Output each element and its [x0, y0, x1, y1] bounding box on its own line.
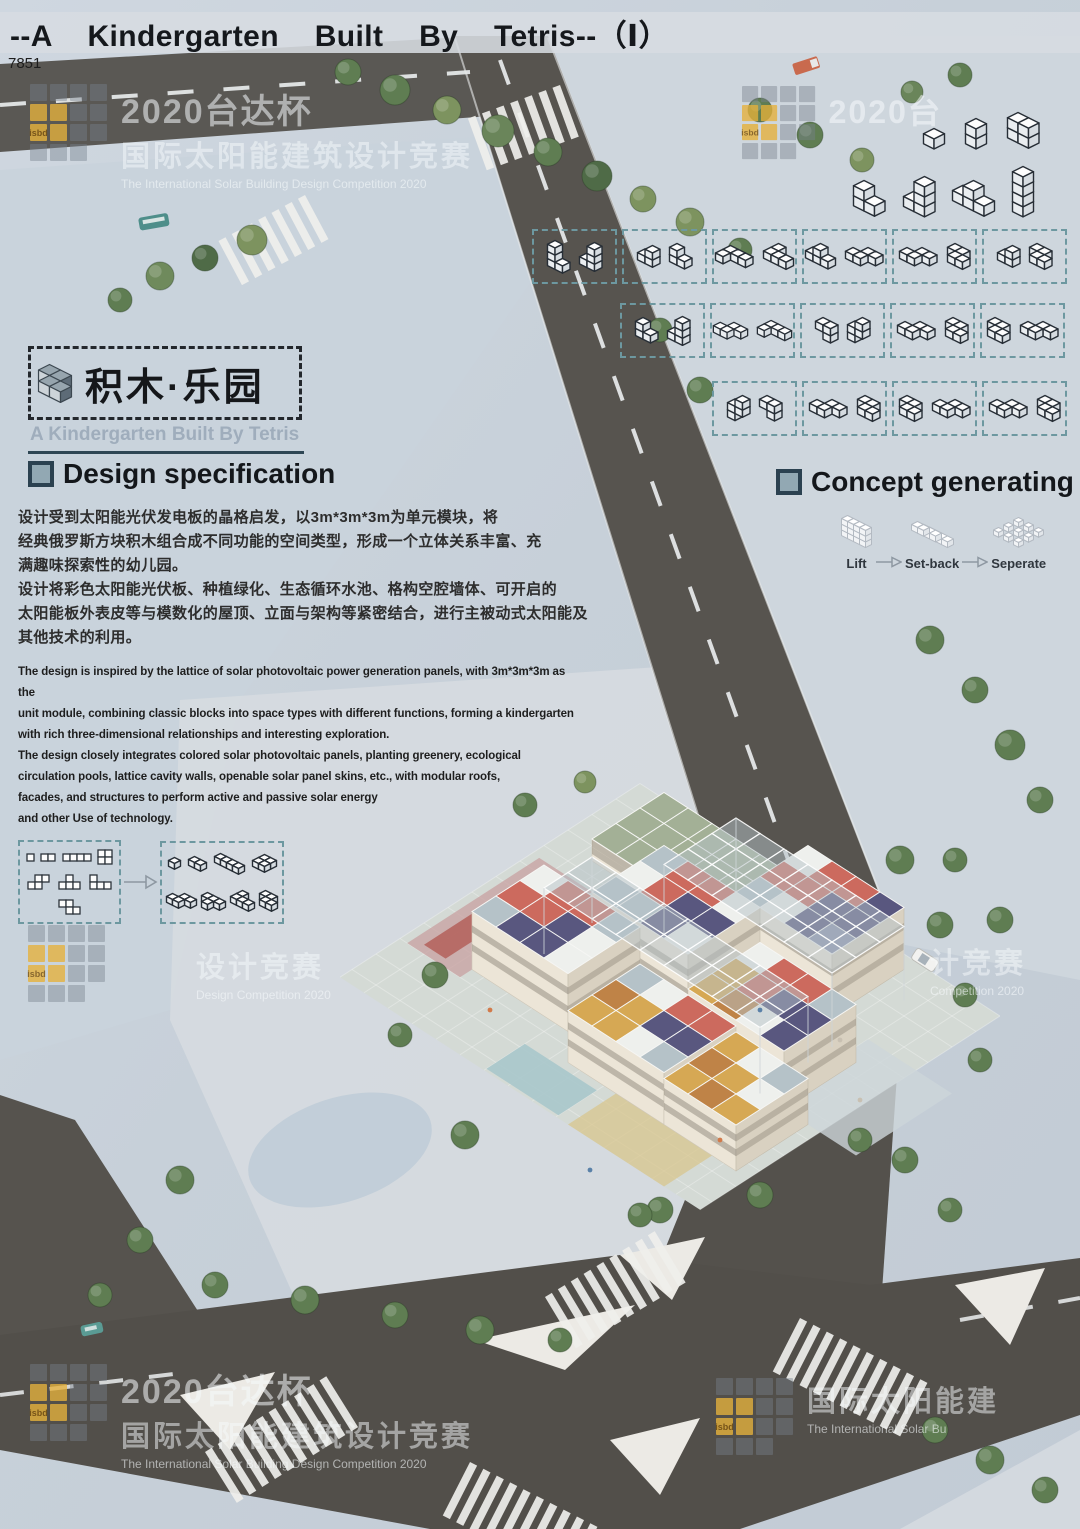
- tetris-piece-zf4: [258, 889, 279, 913]
- flat-tetris-shape: [97, 849, 113, 865]
- watermark-line: The International Solar Building Design …: [121, 177, 473, 191]
- tetris-piece-lf4: [229, 889, 256, 913]
- logo-cell: [68, 985, 85, 1002]
- tree: [388, 1023, 412, 1047]
- tetris-piece-zv3: [758, 394, 784, 423]
- watermark-line: 2020台达杯: [121, 1364, 473, 1413]
- watermark: 设计竞赛Design Competition 2020: [196, 944, 331, 1002]
- logo-cell: [88, 965, 105, 982]
- logo-cell: [742, 86, 758, 102]
- tetris-variant-box: [800, 303, 885, 358]
- logo-cell: [780, 86, 796, 102]
- logo-cell: [88, 945, 105, 962]
- tree: [630, 186, 656, 212]
- logo-cell: [30, 1384, 47, 1401]
- tetris-piece-sf4: [808, 398, 849, 419]
- watermark-line: The International Solar Bu: [807, 1422, 999, 1436]
- logo-cell: [70, 1424, 87, 1441]
- logo-cell: [756, 1378, 773, 1395]
- tetris-variant-box: [620, 303, 705, 358]
- logo-cell: [70, 1404, 87, 1421]
- tetris-variant-box: [982, 381, 1067, 436]
- watermark-line: 2020台达杯: [121, 84, 473, 133]
- square-bullet-icon: [28, 461, 54, 487]
- logo-cell: [736, 1398, 753, 1415]
- concept-steps: LiftSet-backSeperate: [840, 514, 1046, 571]
- logo-cell: [799, 86, 815, 102]
- logo-title: 积木·乐园: [85, 356, 265, 411]
- tetris-piece-sv4: [726, 394, 752, 422]
- watermark-line: Design Competition 2020: [196, 988, 331, 1002]
- logo-cell: [50, 1384, 67, 1401]
- logo-cell: [28, 985, 45, 1002]
- logo-cell: [756, 1418, 773, 1435]
- watermark-line: Competition 2020: [930, 984, 1026, 998]
- logo-cell: [799, 105, 815, 121]
- logo-box: 积木·乐园: [28, 346, 302, 420]
- tree: [916, 626, 944, 654]
- step-label: Lift: [846, 556, 866, 571]
- watermark-line: The International Solar Building Design …: [121, 1457, 473, 1471]
- watermark: 计竞赛Competition 2020: [930, 940, 1026, 998]
- logo-cell: isbd: [30, 124, 47, 141]
- tree: [422, 962, 448, 988]
- tetris-piece-zf4: [856, 394, 882, 423]
- flat-shapes-box: [18, 840, 121, 924]
- tetris-piece-lv3b: [996, 244, 1022, 269]
- logo-cell: [70, 84, 87, 101]
- tetris-piece-sf4: [896, 320, 937, 341]
- logo-cell: isbd: [28, 965, 45, 982]
- tetris-variant-row: [532, 229, 1067, 284]
- square-bullet-icon: [776, 469, 802, 495]
- flat-tetris-shape: [58, 899, 81, 915]
- tree: [108, 288, 132, 312]
- tetris-piece-zf4: [986, 316, 1012, 345]
- tree: [166, 1166, 194, 1194]
- tetris-piece-lv3a: [634, 316, 660, 345]
- concept-title: Concept generating: [811, 466, 1074, 498]
- tree: [382, 1302, 408, 1328]
- tetris-piece-i4: [213, 852, 246, 876]
- design-spec-en: The design is inspired by the lattice of…: [18, 662, 578, 830]
- logo-cell: [50, 124, 67, 141]
- watermark-text: 2020台达杯国际太阳能建筑设计竞赛The International Sola…: [121, 1364, 473, 1471]
- tree: [747, 1182, 773, 1208]
- logo-cell: [90, 84, 107, 101]
- flat-tetris-shape: [62, 853, 92, 862]
- flat-tetris-shape: [27, 874, 50, 890]
- tree: [482, 115, 514, 147]
- logo-cell: [30, 104, 47, 121]
- tetris-piece-t3d: [951, 179, 996, 218]
- tetris-variant-box: [712, 229, 797, 284]
- concept-step-seperate: Seperate: [991, 516, 1046, 571]
- design-spec-title: Design specification: [63, 458, 335, 490]
- tetris-piece-zf4: [946, 242, 972, 271]
- design-spec-heading: Design specification: [28, 458, 335, 490]
- tetris-variant-box: [892, 229, 977, 284]
- tree: [962, 677, 988, 703]
- tetris-logo-icon: [37, 363, 73, 404]
- tetris-piece-sq4: [251, 853, 278, 874]
- isbd-logo: isbd: [742, 86, 815, 159]
- watermark: isbd国际太阳能建The International Solar Bu: [716, 1378, 999, 1455]
- logo-cell: [28, 945, 45, 962]
- watermark-text: 设计竞赛Design Competition 2020: [196, 944, 331, 1002]
- watermark-line: 国际太阳能建筑设计竞赛: [121, 1413, 473, 1455]
- step-diagram-setback: [910, 520, 955, 549]
- logo-cell: [70, 124, 87, 141]
- concept-step-set-back: Set-back: [905, 520, 959, 571]
- tetris-piece-c1: [167, 856, 182, 871]
- plate-number: 7851: [8, 55, 41, 72]
- poster-title: --A Kindergarten Built By Tetris--（Ⅰ）: [0, 11, 669, 55]
- tetris-piece-jf4: [714, 244, 755, 269]
- tetris-solid-row: [852, 156, 1035, 218]
- logo-cell: [736, 1438, 753, 1455]
- tetris-piece-zf4: [898, 394, 924, 423]
- logo-cell: [776, 1398, 793, 1415]
- tree: [848, 1128, 872, 1152]
- logo-cell: [761, 86, 777, 102]
- logo-cell: [756, 1398, 773, 1415]
- logo-cell: [716, 1378, 733, 1395]
- flow-arrow-icon: [876, 556, 902, 568]
- tetris-piece-sf4: [165, 892, 198, 910]
- tetris-piece-sv4: [846, 316, 872, 344]
- watermark: isbd: [28, 925, 105, 1002]
- concept-step-lift: Lift: [840, 514, 873, 571]
- tetris-variant-box: [982, 229, 1067, 284]
- watermark-line: 国际太阳能建筑设计竞赛: [121, 133, 473, 175]
- tetris-variant-box: [892, 381, 977, 436]
- tetris-piece-lv3a: [852, 179, 887, 218]
- logo-cell: [780, 105, 796, 121]
- logo-cell: [756, 1438, 773, 1455]
- tree: [927, 912, 953, 938]
- isbd-logo: isbd: [30, 84, 107, 161]
- tree: [1032, 1477, 1058, 1503]
- logo-cell: [780, 143, 796, 159]
- tetris-variant-box: [980, 303, 1065, 358]
- iso-shapes-box: [160, 841, 284, 924]
- tetris-piece-col4: [1011, 165, 1035, 218]
- logo-cell: [799, 124, 815, 140]
- tetris-piece-lf4: [762, 242, 795, 271]
- tree: [202, 1272, 228, 1298]
- tetris-logo-icon: [37, 363, 73, 404]
- logo-cell: [90, 1384, 107, 1401]
- logo-underline: [28, 451, 304, 454]
- tree: [127, 1227, 153, 1253]
- isbd-logo: isbd: [30, 1364, 107, 1441]
- logo-cell: [48, 945, 65, 962]
- isbd-logo: isbd: [28, 925, 105, 1002]
- step-diagram-lift: [840, 514, 873, 549]
- logo-cell: isbd: [742, 124, 758, 140]
- logo-cell: [50, 144, 67, 161]
- tetris-piece-c1: [922, 127, 946, 150]
- tetris-piece-lv3b: [636, 244, 662, 269]
- logo-cell: [70, 104, 87, 121]
- logo-cell: [28, 925, 45, 942]
- tetris-solid-row: [922, 84, 1041, 150]
- tetris-piece-zf4: [1036, 394, 1062, 423]
- logo-cell: [48, 965, 65, 982]
- tetris-variant-box: [710, 303, 795, 358]
- tree: [582, 161, 612, 191]
- logo-cell: [776, 1378, 793, 1395]
- tetris-piece-sf4: [712, 320, 749, 341]
- logo-cell: [90, 124, 107, 141]
- tetris-piece-sf4: [1019, 320, 1060, 341]
- logo-cell: [68, 945, 85, 962]
- tetris-piece-sf4: [931, 398, 972, 419]
- watermark: isbd2020台达杯国际太阳能建筑设计竞赛The International …: [30, 84, 473, 191]
- tetris-piece-w22: [1006, 111, 1041, 150]
- tetris-piece-d2: [187, 855, 208, 873]
- tetris-piece-lv4a: [546, 239, 572, 275]
- logo-cell: [50, 1404, 67, 1421]
- tetris-variant-box: [890, 303, 975, 358]
- tree: [968, 1048, 992, 1072]
- logo-cell: [776, 1418, 793, 1435]
- watermark-text: 计竞赛Competition 2020: [930, 940, 1026, 998]
- tree: [534, 138, 562, 166]
- logo-cell: [736, 1378, 753, 1395]
- flat-tetris-shape: [40, 853, 56, 862]
- flat-tetris-shape: [58, 874, 81, 890]
- tree: [291, 1286, 319, 1314]
- watermark-line: 国际太阳能建: [807, 1378, 999, 1420]
- tetris-piece-t3d: [804, 242, 837, 271]
- competition-poster: { "header": { "title": "--A Kindergarten…: [0, 0, 1080, 1529]
- tetris-variant-box: [712, 381, 797, 436]
- logo-cell: [70, 1384, 87, 1401]
- logo-cell: [70, 1364, 87, 1381]
- tetris-variant-row: [712, 381, 1067, 436]
- tetris-piece-lv4b: [578, 241, 604, 273]
- transform-arrow-icon: [124, 874, 158, 890]
- logo-cell: [30, 1424, 47, 1441]
- tetris-piece-zf4: [944, 316, 970, 345]
- tree: [88, 1283, 112, 1307]
- step-label: Seperate: [991, 556, 1046, 571]
- tetris-piece-zv3: [814, 316, 840, 345]
- tree: [548, 1328, 572, 1352]
- tetris-piece-tf4: [200, 891, 227, 912]
- title-strip: --A Kindergarten Built By Tetris--（Ⅰ）: [0, 12, 1080, 53]
- watermark: isbd2020台达杯国际太阳能建筑设计竞赛The International …: [30, 1364, 473, 1471]
- flat-tetris-shape: [26, 853, 35, 862]
- tree: [1027, 787, 1053, 813]
- tree: [451, 1121, 479, 1149]
- tetris-piece-lv4b: [902, 175, 937, 218]
- logo-cell: [761, 124, 777, 140]
- watermark-text: 2020台达杯国际太阳能建筑设计竞赛The International Sola…: [121, 84, 473, 191]
- logo-cell: [742, 143, 758, 159]
- flat-tetris-shape: [89, 874, 112, 890]
- logo-cell: [70, 144, 87, 161]
- tree: [335, 59, 361, 85]
- tetris-piece-sf4: [988, 398, 1029, 419]
- logo-cell: [50, 84, 67, 101]
- design-spec-cn: 设计受到太阳能光伏发电板的晶格启发，以3m*3m*3m为单元模块，将 经典俄罗斯…: [18, 506, 618, 650]
- watermark-line: 计竞赛: [930, 940, 1026, 982]
- tetris-variant-box: [802, 381, 887, 436]
- logo-cell: [780, 124, 796, 140]
- tetris-variant-box: [532, 229, 617, 284]
- tree: [466, 1316, 494, 1344]
- logo-cell: [90, 1364, 107, 1381]
- logo-subtitle: A Kindergarten Built By Tetris: [30, 424, 299, 446]
- logo-cell: [716, 1438, 733, 1455]
- step-diagram-seperate: [992, 516, 1045, 549]
- tree: [192, 245, 218, 271]
- logo-cell: [68, 925, 85, 942]
- tetris-piece-lv4b: [666, 315, 692, 347]
- logo-cell: isbd: [716, 1418, 733, 1435]
- logo-cell: [30, 84, 47, 101]
- tree: [237, 225, 267, 255]
- logo-cell: [761, 105, 777, 121]
- watermark-line: 设计竞赛: [196, 944, 331, 986]
- logo-cell: [68, 965, 85, 982]
- tetris-variant-box: [802, 229, 887, 284]
- logo-cell: isbd: [30, 1404, 47, 1421]
- logo-cell: [48, 985, 65, 1002]
- tetris-piece-zf4: [1028, 242, 1054, 271]
- logo-cell: [48, 925, 65, 942]
- tetris-piece-v2: [964, 117, 988, 150]
- logo-cell: [30, 1364, 47, 1381]
- logo-cell: [50, 1424, 67, 1441]
- tree: [146, 262, 174, 290]
- logo-cell: [50, 1364, 67, 1381]
- logo-cell: [761, 143, 777, 159]
- tetris-piece-jf4: [756, 318, 793, 343]
- logo-cell: [90, 104, 107, 121]
- tree: [628, 1203, 652, 1227]
- tetris-variant-box: [622, 229, 707, 284]
- flow-arrow-icon: [962, 556, 988, 568]
- logo-cell: [50, 104, 67, 121]
- tetris-piece-sf4: [844, 246, 885, 267]
- step-label: Set-back: [905, 556, 959, 571]
- logo-cell: [742, 105, 758, 121]
- logo-cell: [716, 1398, 733, 1415]
- tetris-piece-sf4: [898, 246, 939, 267]
- logo-cell: [30, 144, 47, 161]
- tetris-piece-lv3a: [668, 242, 694, 271]
- tetris-variant-row: [620, 303, 1065, 358]
- logo-cell: [736, 1418, 753, 1435]
- logo-cell: [90, 1404, 107, 1421]
- logo-cell: [88, 925, 105, 942]
- isbd-logo: isbd: [716, 1378, 793, 1455]
- tree: [886, 846, 914, 874]
- watermark: isbd2020台: [742, 86, 942, 159]
- watermark-text: 国际太阳能建The International Solar Bu: [807, 1378, 999, 1436]
- tree: [687, 377, 713, 403]
- concept-heading: Concept generating: [776, 466, 1074, 498]
